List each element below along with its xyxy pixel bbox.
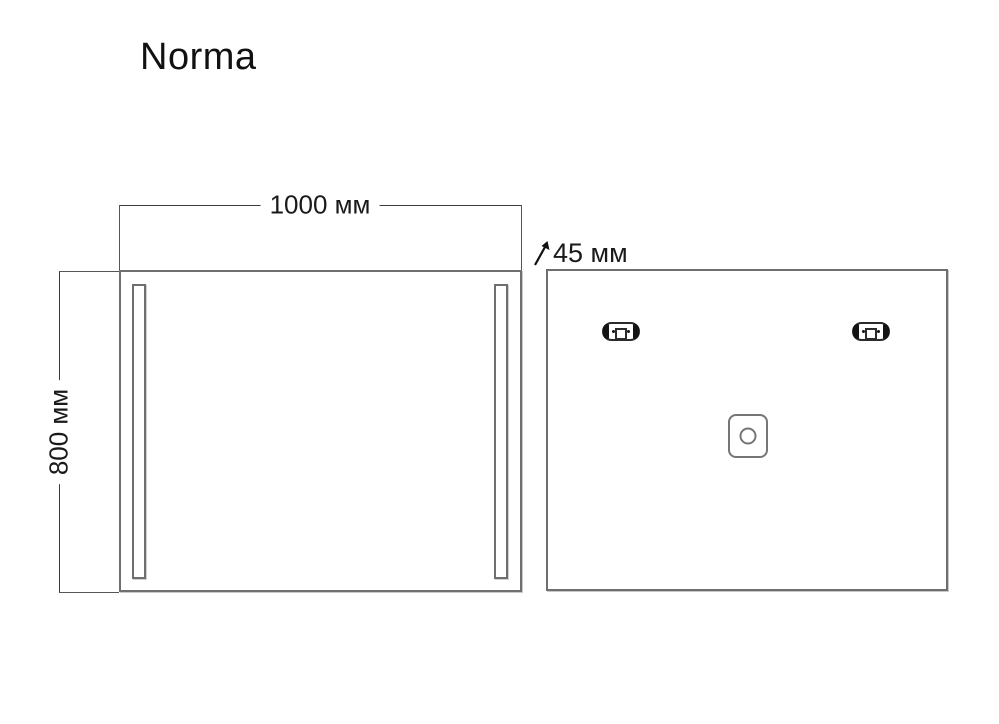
bracket-end-cap <box>633 324 639 339</box>
mirror-back-view <box>546 269 948 591</box>
led-strip-right <box>494 284 508 579</box>
bracket-end-cap <box>853 324 859 339</box>
width-extension-line-left <box>119 205 120 270</box>
height-extension-line-bottom <box>59 592 119 593</box>
height-extension-line-top <box>59 271 119 272</box>
bracket-keyhole-square <box>865 328 877 340</box>
width-extension-line-right <box>521 205 522 270</box>
mounting-bracket-right-icon <box>852 322 890 341</box>
bracket-end-cap <box>603 324 609 339</box>
technical-drawing-canvas: Norma 1000 мм 800 мм 45 мм <box>0 0 999 724</box>
depth-dimension-label: 45 мм <box>553 238 628 269</box>
led-strip-left <box>132 284 146 579</box>
mounting-bracket-left-icon <box>602 322 640 341</box>
depth-arrow-icon <box>531 238 553 268</box>
mirror-front-view <box>119 270 522 592</box>
page-title: Norma <box>140 36 257 79</box>
bracket-screw-dot <box>877 330 880 333</box>
bracket-screw-dot <box>627 330 630 333</box>
junction-box-cable-hole <box>740 428 757 445</box>
bracket-end-cap <box>883 324 889 339</box>
bracket-keyhole-square <box>615 328 627 340</box>
junction-box-icon <box>728 414 768 458</box>
height-dimension-label: 800 мм <box>44 380 75 484</box>
width-dimension-label: 1000 мм <box>261 190 380 221</box>
